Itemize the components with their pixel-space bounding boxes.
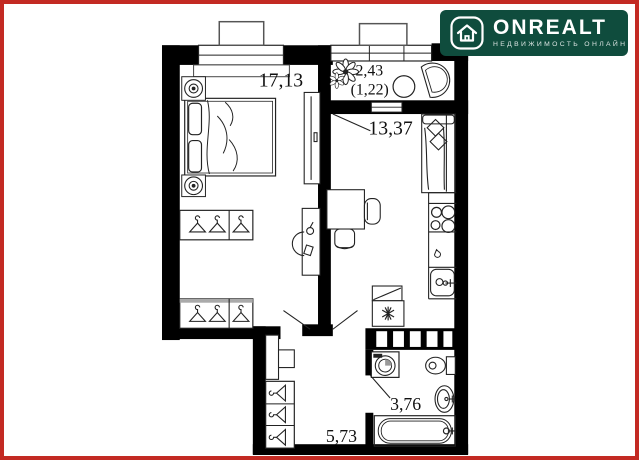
bathtub-icon	[374, 416, 455, 446]
desk-icon	[327, 190, 380, 249]
desk-icon	[292, 208, 320, 275]
bathroom-area-label: 3,76	[390, 394, 421, 414]
cushion-icon	[427, 119, 444, 136]
pillow-icon	[189, 141, 202, 172]
house-icon	[450, 16, 484, 50]
wardrobe-hanger-icon	[180, 299, 253, 328]
kitchen-living-area-label: 13,37	[368, 118, 413, 140]
fan-armchair-icon	[420, 59, 454, 99]
floorplan-image: 17,13 2,43 (1,22) 13,37 3,76 5,73 ONREAL…	[0, 0, 639, 460]
floorplan-drawing: 17,13 2,43 (1,22) 13,37 3,76 5,73	[4, 4, 635, 456]
toilet-icon	[426, 357, 456, 375]
wardrobe-hanger-icon	[266, 381, 295, 448]
hallway-area-label: 5,73	[326, 426, 357, 446]
washing-machine-icon	[371, 352, 399, 378]
dresser-icon	[266, 335, 295, 379]
wardrobe-hanger-icon	[180, 210, 253, 239]
loggia-room-window-icon	[371, 102, 402, 112]
tv-cabinet-icon	[304, 92, 320, 183]
onrealt-watermark: ONREALT НЕДВИЖИМОСТЬ ОНЛАЙН	[440, 10, 628, 56]
sofa-icon	[422, 114, 456, 193]
fridge-snowflake-icon	[372, 286, 404, 326]
double-bed-icon	[185, 98, 276, 176]
kitchen-sink-icon	[431, 269, 457, 296]
watermark-text: ONREALT НЕДВИЖИМОСТЬ ОНЛАЙН	[493, 17, 627, 49]
watermark-brand: ONREALT	[493, 17, 627, 38]
watermark-tagline: НЕДВИЖИМОСТЬ ОНЛАЙН	[493, 42, 627, 49]
washbasin-icon	[435, 386, 455, 413]
loggia-reduced-area-label: (1,22)	[351, 81, 389, 98]
round-table-icon	[393, 76, 415, 98]
exterior-box-icon	[219, 22, 407, 46]
loggia-area-label: 2,43	[356, 63, 384, 80]
chair-icon	[335, 229, 355, 248]
pillow-icon	[189, 103, 202, 134]
bedroom-area-label: 17,13	[259, 70, 304, 92]
